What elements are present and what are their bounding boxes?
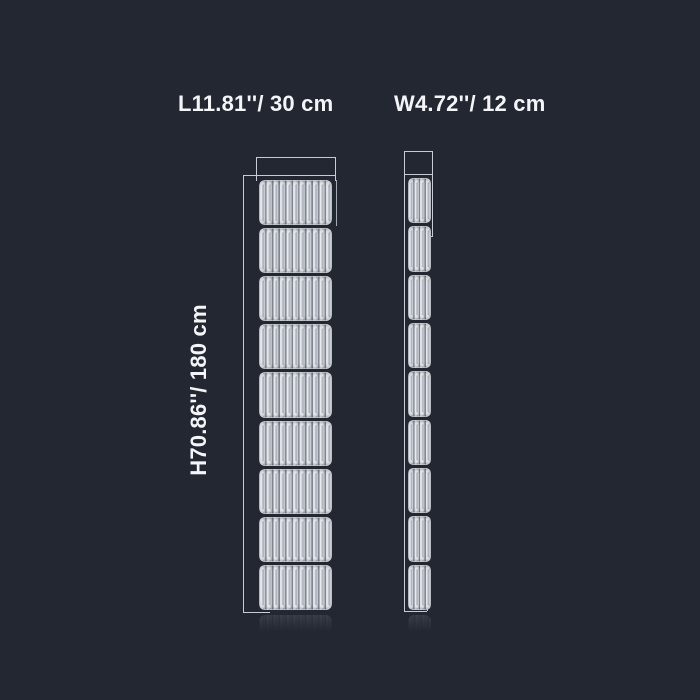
dimension-diagram: L11.81''/ 30 cm W4.72''/ 12 cm H70.86''/… (0, 0, 700, 700)
glass-segment (408, 323, 431, 368)
front-outline-bottom-edge (243, 612, 270, 613)
glass-segment (408, 516, 431, 561)
glass-segment (259, 565, 332, 610)
glass-segment (259, 180, 332, 225)
glass-segment (408, 275, 431, 320)
glass-segment (259, 276, 332, 321)
side-floor-reflection (408, 615, 431, 633)
front-floor-reflection (259, 615, 332, 633)
front-outline-cap (256, 157, 336, 181)
glass-segment (408, 371, 431, 416)
glass-segment (259, 517, 332, 562)
front-outline-left-edge (243, 175, 244, 613)
glass-segment (408, 420, 431, 465)
side-segment-stack (408, 178, 431, 610)
height-dimension-label: H70.86''/ 180 cm (186, 304, 212, 475)
glass-segment (259, 324, 332, 369)
front-outline-shelf-line (243, 175, 336, 176)
front-segment-stack (259, 180, 332, 610)
side-outline-right-edge (431, 175, 433, 237)
glass-segment (259, 421, 332, 466)
glass-segment (408, 468, 431, 513)
glass-segment (408, 178, 431, 223)
glass-segment (259, 228, 332, 273)
side-outline-shelf-line (404, 174, 433, 175)
front-outline-right-edge (335, 180, 337, 226)
glass-segment (408, 226, 431, 271)
length-dimension-label: L11.81''/ 30 cm (178, 91, 333, 117)
glass-segment (259, 469, 332, 514)
glass-segment (259, 372, 332, 417)
side-outline-bottom-edge (404, 611, 427, 612)
glass-segment (408, 565, 431, 610)
width-dimension-label: W4.72''/ 12 cm (394, 91, 545, 117)
side-outline-left-edge (404, 174, 405, 612)
side-outline-cap (404, 151, 433, 175)
